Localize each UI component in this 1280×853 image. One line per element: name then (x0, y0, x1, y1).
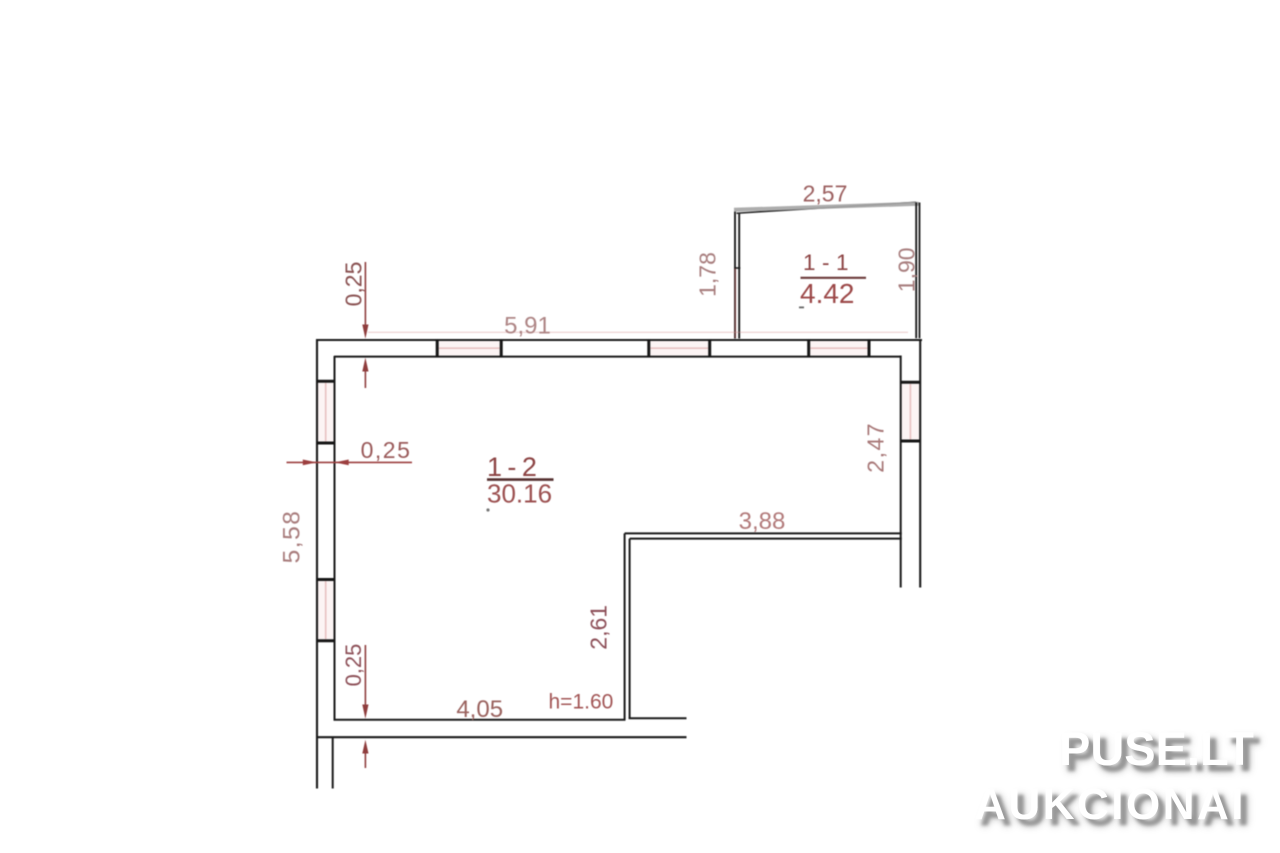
svg-text:2,47: 2,47 (863, 422, 889, 473)
svg-text:0,25: 0,25 (341, 644, 366, 687)
svg-text:4.42: 4.42 (800, 278, 855, 309)
svg-text:4,05: 4,05 (456, 696, 503, 723)
svg-text:5,58: 5,58 (279, 510, 306, 564)
svg-text:30.16: 30.16 (487, 479, 552, 509)
svg-text:0,25: 0,25 (361, 437, 412, 463)
svg-text:1,90: 1,90 (894, 247, 920, 292)
svg-text:h=1.60: h=1.60 (549, 691, 614, 714)
svg-text:1 - 2: 1 - 2 (487, 452, 537, 482)
svg-text:5,91: 5,91 (504, 313, 551, 340)
svg-text:2,61: 2,61 (585, 605, 611, 650)
svg-text:1 - 1: 1 - 1 (803, 250, 850, 275)
svg-text:2,57: 2,57 (803, 181, 848, 207)
svg-text:1,78: 1,78 (695, 252, 721, 297)
svg-text:0,25: 0,25 (341, 262, 367, 307)
svg-text:3,88: 3,88 (739, 508, 786, 535)
